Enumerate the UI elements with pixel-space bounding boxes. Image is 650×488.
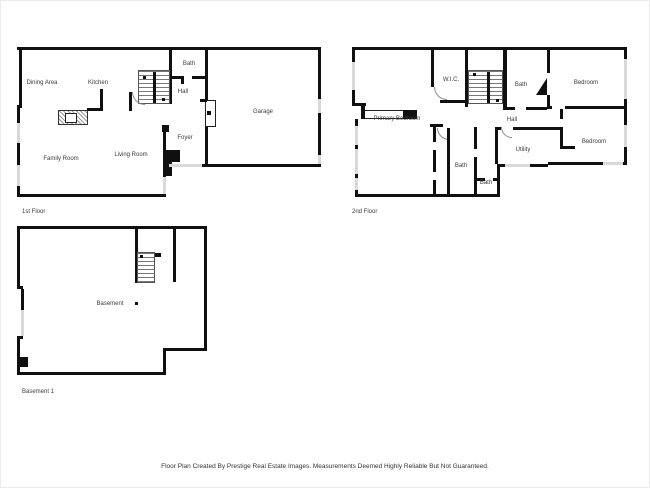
door-jamb bbox=[181, 76, 184, 84]
wall bbox=[493, 178, 499, 181]
wall bbox=[163, 348, 207, 351]
window bbox=[355, 126, 358, 145]
room-label-utility: Utility bbox=[516, 147, 531, 153]
room-label-kitchen: Kitchen bbox=[88, 80, 108, 86]
wall bbox=[487, 72, 490, 103]
wall bbox=[495, 130, 498, 164]
room-label-bath: Bath bbox=[183, 61, 195, 67]
window bbox=[163, 177, 166, 194]
wall bbox=[20, 357, 28, 367]
window bbox=[624, 125, 627, 147]
door-arc bbox=[132, 92, 145, 105]
fireplace bbox=[163, 150, 172, 176]
wall bbox=[433, 150, 436, 172]
disclaimer-text: Floor Plan Created By Prestige Real Esta… bbox=[0, 463, 650, 470]
wall bbox=[503, 47, 507, 107]
door-arc bbox=[501, 127, 512, 138]
room-label-family-room: Family Room bbox=[43, 156, 78, 162]
window bbox=[355, 178, 358, 190]
wall bbox=[433, 180, 436, 197]
stair-arrow-marker bbox=[496, 99, 499, 102]
wall bbox=[318, 113, 321, 155]
wall bbox=[318, 47, 321, 99]
wall bbox=[19, 50, 22, 105]
wall bbox=[200, 99, 207, 102]
wall bbox=[503, 107, 515, 110]
room-label-bath-small: Bath bbox=[480, 180, 492, 186]
door-jamb bbox=[155, 253, 161, 257]
wall bbox=[17, 226, 207, 229]
room-label-wic: W.I.C. bbox=[443, 77, 459, 83]
floor-caption-basement: Basement 1 bbox=[22, 389, 54, 395]
room-label-bath-main: Bath bbox=[455, 163, 467, 169]
wall bbox=[162, 125, 169, 132]
wall bbox=[474, 157, 477, 197]
wall bbox=[440, 100, 467, 103]
wall bbox=[560, 109, 563, 119]
window bbox=[17, 123, 20, 143]
wall bbox=[352, 50, 355, 62]
door-sill bbox=[169, 164, 202, 167]
floor-caption-second: 2nd Floor bbox=[352, 209, 377, 215]
wall bbox=[17, 229, 20, 286]
wall bbox=[205, 127, 208, 167]
room-label-bedroom-top: Bedroom bbox=[574, 80, 598, 86]
room-label-bedroom-right: Bedroom bbox=[582, 139, 606, 145]
wall bbox=[563, 146, 575, 149]
wall bbox=[17, 143, 20, 165]
window bbox=[355, 149, 358, 174]
window bbox=[624, 59, 627, 99]
window bbox=[603, 162, 623, 165]
room-label-garage: Garage bbox=[253, 109, 273, 115]
basement-floor-plan: Basement bbox=[17, 226, 209, 378]
window bbox=[21, 310, 24, 336]
wall bbox=[565, 106, 627, 109]
wall bbox=[355, 119, 358, 126]
wall bbox=[430, 124, 443, 127]
wall bbox=[202, 164, 321, 167]
floor-caption-first: 1st Floor bbox=[22, 209, 45, 215]
window bbox=[318, 99, 321, 113]
window bbox=[17, 165, 20, 186]
stair-arrow-marker bbox=[140, 255, 143, 258]
wall bbox=[173, 229, 176, 282]
wall bbox=[431, 47, 434, 87]
door-marker bbox=[207, 111, 211, 115]
wall bbox=[17, 194, 166, 197]
wall bbox=[352, 47, 627, 50]
wall bbox=[17, 339, 20, 372]
window bbox=[505, 164, 530, 167]
room-label-basement: Basement bbox=[96, 301, 123, 307]
room-label-bath-top: Bath bbox=[515, 82, 527, 88]
wall bbox=[205, 47, 208, 101]
wall bbox=[192, 76, 205, 79]
wall bbox=[526, 107, 547, 110]
window bbox=[352, 62, 355, 90]
wall bbox=[624, 109, 627, 125]
room-label-foyer: Foyer bbox=[177, 135, 192, 141]
stair-arrow-marker bbox=[162, 98, 165, 101]
wall bbox=[547, 50, 550, 73]
room-label-hall: Hall bbox=[507, 117, 517, 123]
room-label-dining-area: Dining Area bbox=[26, 80, 57, 86]
room-label-living-room: Living Room bbox=[114, 152, 147, 158]
wall bbox=[547, 95, 550, 109]
floor-plan-page: { "floors": { "first": { "caption": "1st… bbox=[0, 0, 650, 488]
door-arc bbox=[434, 87, 447, 100]
wall bbox=[318, 164, 321, 167]
wall bbox=[624, 147, 627, 165]
first-floor-plan: Dining Area Kitchen Bath Hall Garage Foy… bbox=[17, 47, 321, 200]
wall bbox=[17, 372, 166, 375]
window bbox=[318, 155, 321, 164]
door-swing bbox=[536, 78, 547, 95]
wall bbox=[355, 194, 500, 197]
kitchen-sink bbox=[65, 113, 77, 123]
wall bbox=[624, 47, 627, 59]
wall bbox=[513, 127, 560, 130]
column-marker bbox=[135, 302, 138, 305]
wall bbox=[204, 229, 207, 351]
room-label-primary-bedroom: Primary Bedroom bbox=[374, 116, 421, 122]
wall bbox=[474, 127, 477, 149]
room-label-hall: Hall bbox=[178, 89, 188, 95]
wall bbox=[153, 72, 156, 103]
stair-arrow-marker bbox=[473, 73, 476, 76]
wall bbox=[21, 289, 24, 310]
wall bbox=[17, 108, 20, 123]
wall bbox=[433, 127, 436, 142]
stair-arrow-marker bbox=[143, 76, 146, 79]
wall bbox=[100, 89, 103, 111]
wall bbox=[447, 128, 450, 197]
second-floor-plan: W.I.C. Bath Bedroom Primary Bedroom Hall… bbox=[350, 47, 630, 203]
